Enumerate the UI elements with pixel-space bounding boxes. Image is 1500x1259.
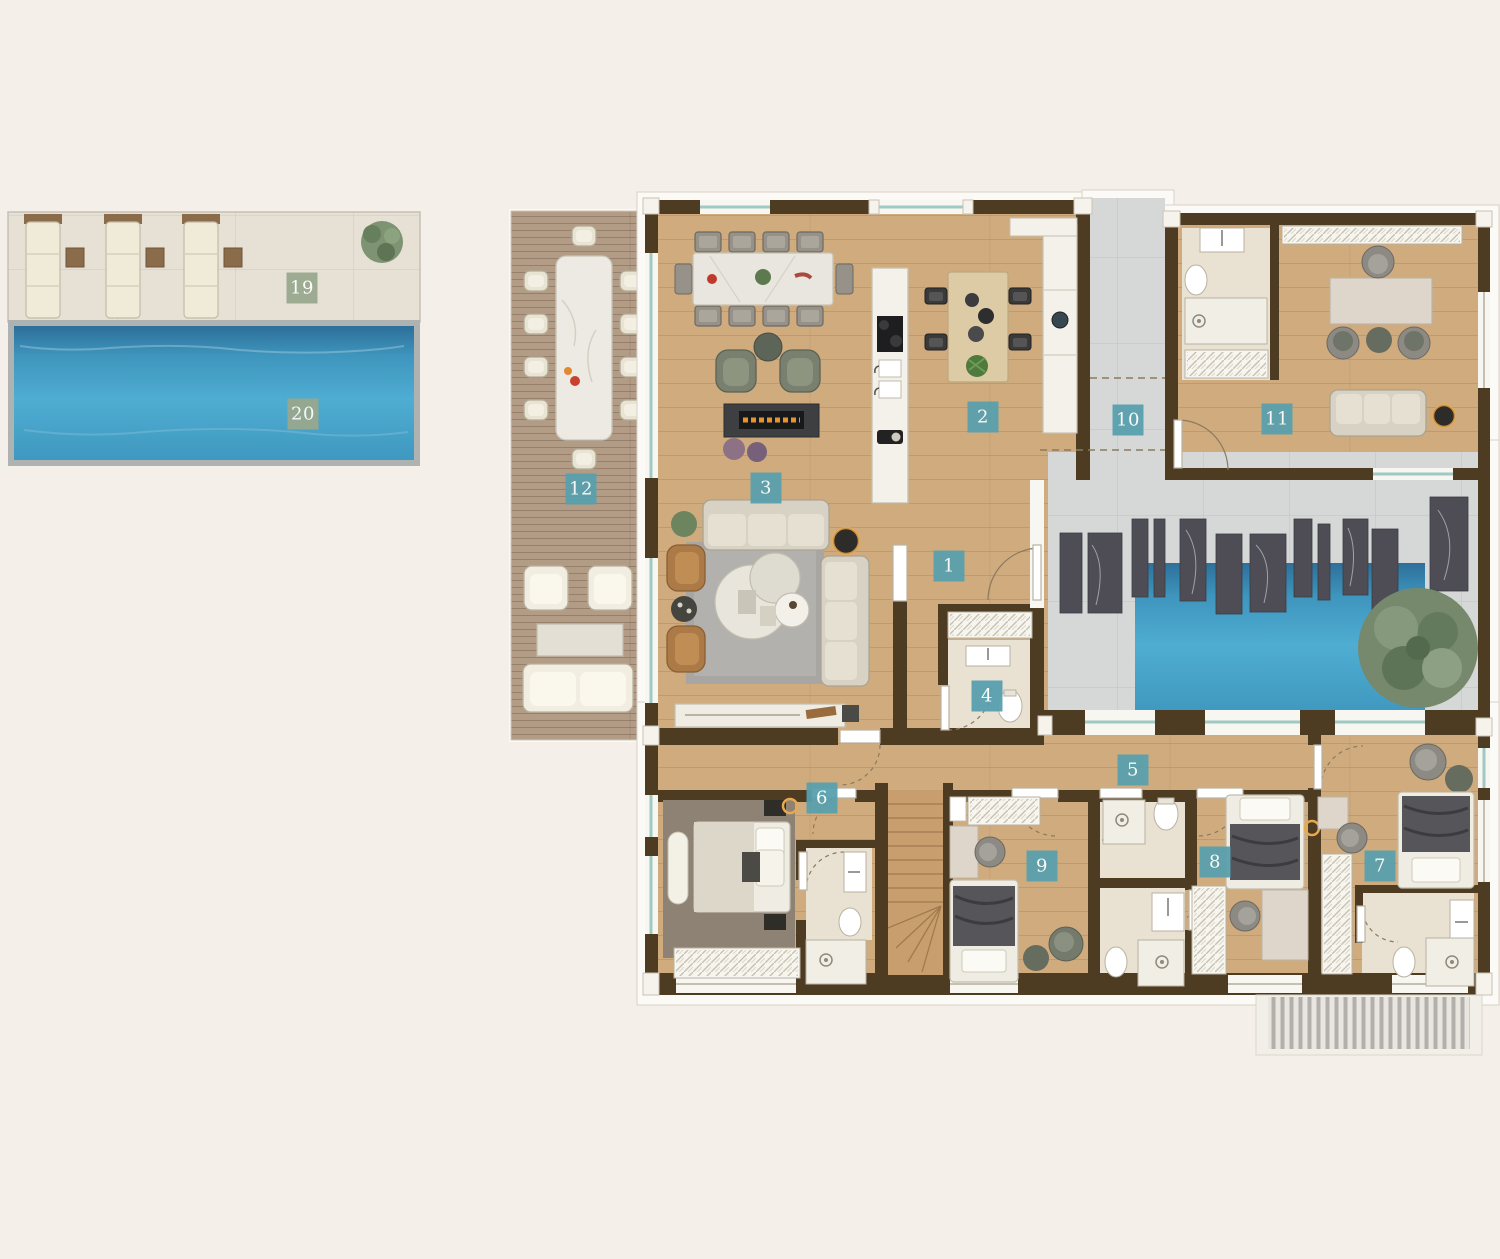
coffee-table: [537, 624, 623, 656]
round-table: [1366, 327, 1392, 353]
wing-left-window: [645, 795, 658, 837]
sink: [879, 360, 901, 377]
study-side-window: [1478, 292, 1490, 388]
staircase: [888, 790, 943, 975]
room-label-2: 2: [968, 402, 999, 433]
floor-lamp: [833, 528, 859, 554]
sideboard: [675, 704, 859, 727]
sink: [879, 381, 901, 398]
desk: [1262, 890, 1308, 960]
courtyard-tree: [1358, 588, 1478, 708]
study-window: [1373, 468, 1453, 480]
room-label-11: 11: [1262, 404, 1293, 435]
bed: [1226, 795, 1304, 889]
terrace-glazing: [645, 558, 658, 703]
black-side-table: [671, 596, 697, 622]
side-table: [146, 248, 164, 267]
room-label-8: 8: [1200, 847, 1231, 878]
toilet: [1105, 947, 1127, 977]
room-label-10: 10: [1113, 405, 1144, 436]
sun-lounger: [182, 214, 220, 318]
side-table: [66, 248, 84, 267]
toilet: [839, 908, 861, 936]
room-label-3: 3: [751, 473, 782, 504]
bed: [950, 880, 1018, 982]
bed: [694, 822, 790, 912]
area-label-20: 20: [288, 399, 319, 430]
pouf: [1445, 765, 1473, 793]
side-table: [224, 248, 242, 267]
pool-deck-area: [8, 212, 420, 322]
pouf: [1023, 945, 1049, 971]
room-label-7: 7: [1365, 851, 1396, 882]
courtyard-window: [1085, 710, 1155, 735]
fireplace: [724, 404, 819, 437]
bedroom8-window: [1228, 975, 1302, 993]
desk: [1318, 797, 1348, 829]
desk: [1330, 278, 1432, 324]
floor-lamp: [1433, 405, 1455, 427]
courtyard-window: [1335, 710, 1425, 735]
bench: [668, 832, 688, 904]
shower: [806, 940, 866, 984]
nightstand: [764, 914, 786, 930]
desk: [950, 826, 978, 878]
floor-plan-drawing: [0, 0, 1500, 1259]
sofa-top: [703, 500, 829, 550]
wing-left-window: [645, 856, 658, 934]
floor-plan: 1 2 3 4 5 6 7 8 9 10 11 12 19 20: [0, 0, 1500, 1259]
coffee-machine: [1052, 312, 1068, 328]
area-label-19: 19: [287, 273, 318, 304]
terrace-glazing: [645, 253, 658, 478]
side-table: [754, 333, 782, 361]
room-label-5: 5: [1118, 755, 1149, 786]
plant: [361, 221, 403, 263]
sofa-right: [821, 556, 869, 686]
toilet: [1185, 265, 1207, 295]
courtyard-window: [1205, 710, 1300, 735]
shower: [1103, 800, 1145, 844]
outdoor-pool: [8, 320, 420, 466]
room-label-4: 4: [972, 681, 1003, 712]
lower-deck: [1256, 995, 1482, 1055]
room-label-12: 12: [566, 474, 597, 505]
window: [877, 200, 963, 214]
room-label-6: 6: [807, 783, 838, 814]
wing-right-window: [1478, 748, 1490, 788]
room-label-9: 9: [1027, 851, 1058, 882]
leather-armchair: [667, 545, 705, 591]
sun-lounger: [24, 214, 62, 318]
door-living-hall: [893, 545, 907, 601]
room-label-1: 1: [934, 551, 965, 582]
sun-lounger: [104, 214, 142, 318]
study-sofa: [1330, 390, 1426, 436]
toilet: [1393, 947, 1415, 977]
window: [700, 200, 770, 214]
wing-right-window: [1478, 800, 1490, 882]
kitchen-island: [872, 268, 908, 503]
leather-armchair: [667, 626, 705, 672]
bed: [1398, 792, 1474, 888]
